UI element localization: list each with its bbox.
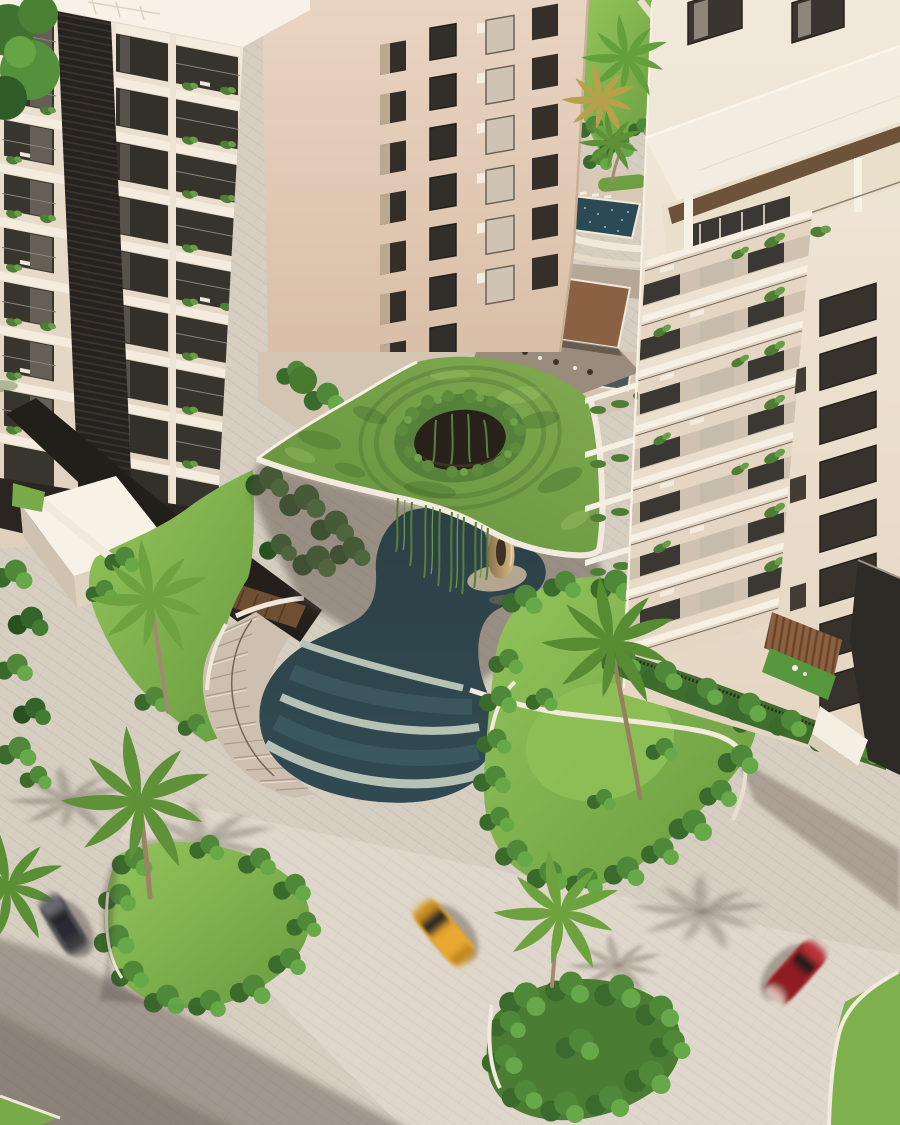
middle-tower [262, 0, 588, 375]
courtyard-tree [289, 366, 317, 394]
architectural-render [0, 0, 900, 1125]
render-canvas [0, 0, 900, 1125]
